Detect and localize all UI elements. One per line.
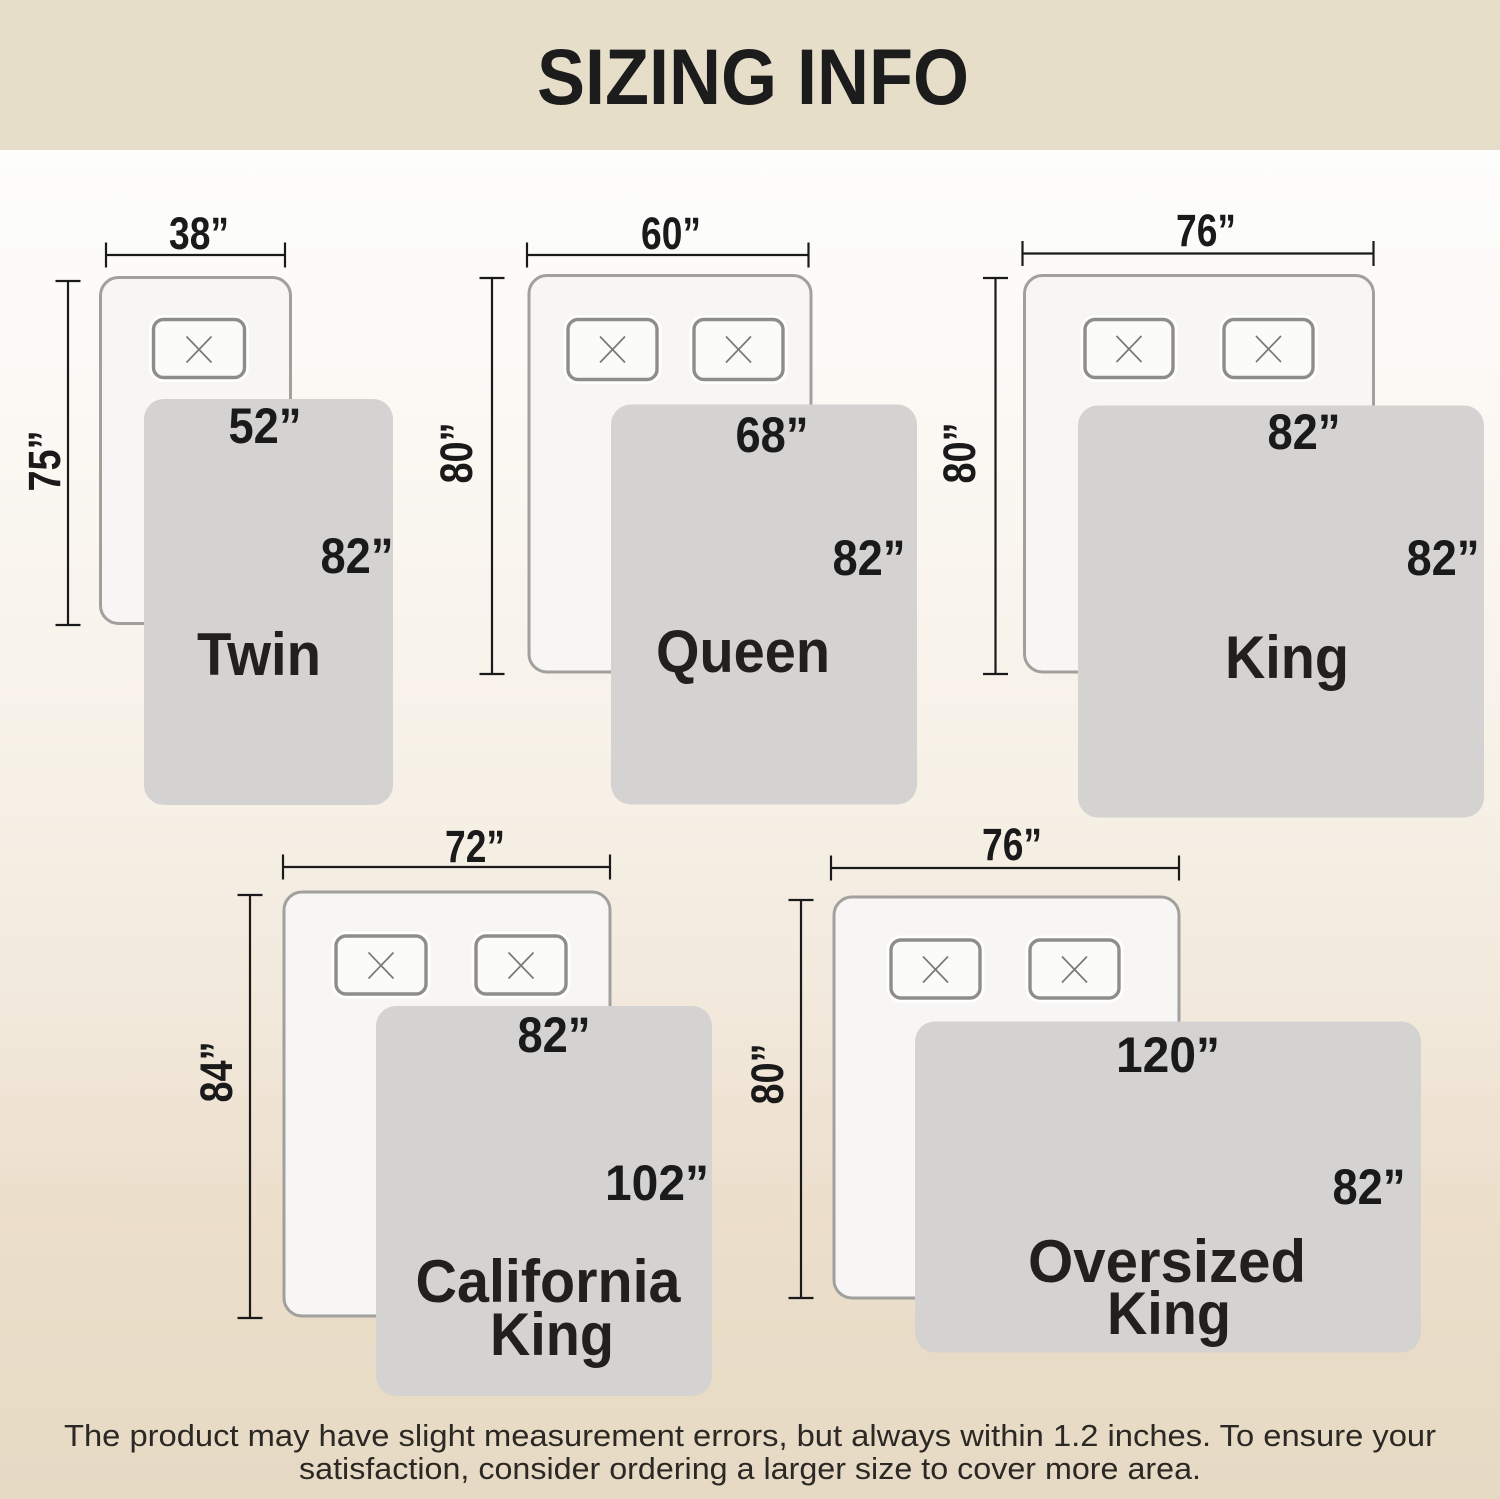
svg-text:60”: 60” [641,208,701,259]
svg-text:82”: 82” [1268,404,1341,460]
svg-text:The product may have slight me: The product may have slight measurement … [64,1418,1436,1453]
svg-text:72”: 72” [445,821,505,872]
svg-text:82”: 82” [1333,1159,1406,1215]
svg-text:52”: 52” [229,398,302,454]
svg-text:82”: 82” [321,528,394,584]
svg-text:102”: 102” [605,1155,709,1211]
svg-text:82”: 82” [833,530,906,586]
svg-text:King: King [1225,624,1349,691]
svg-text:King: King [490,1301,614,1368]
svg-text:75”: 75” [19,431,70,492]
svg-text:King: King [1107,1280,1231,1347]
svg-text:80”: 80” [742,1044,793,1105]
svg-text:76”: 76” [982,819,1042,870]
svg-text:SIZING INFO: SIZING INFO [537,32,969,121]
svg-text:Queen: Queen [656,618,830,685]
svg-text:82”: 82” [518,1007,591,1063]
svg-text:Twin: Twin [197,621,321,688]
svg-text:80”: 80” [934,423,985,484]
svg-text:120”: 120” [1116,1027,1220,1083]
svg-text:satisfaction, consider orderin: satisfaction, consider ordering a larger… [299,1451,1201,1486]
svg-text:82”: 82” [1407,530,1480,586]
svg-text:80”: 80” [431,423,482,484]
svg-text:76”: 76” [1176,205,1236,256]
svg-text:68”: 68” [736,407,809,463]
svg-text:38”: 38” [169,208,229,259]
svg-text:84”: 84” [191,1042,242,1103]
